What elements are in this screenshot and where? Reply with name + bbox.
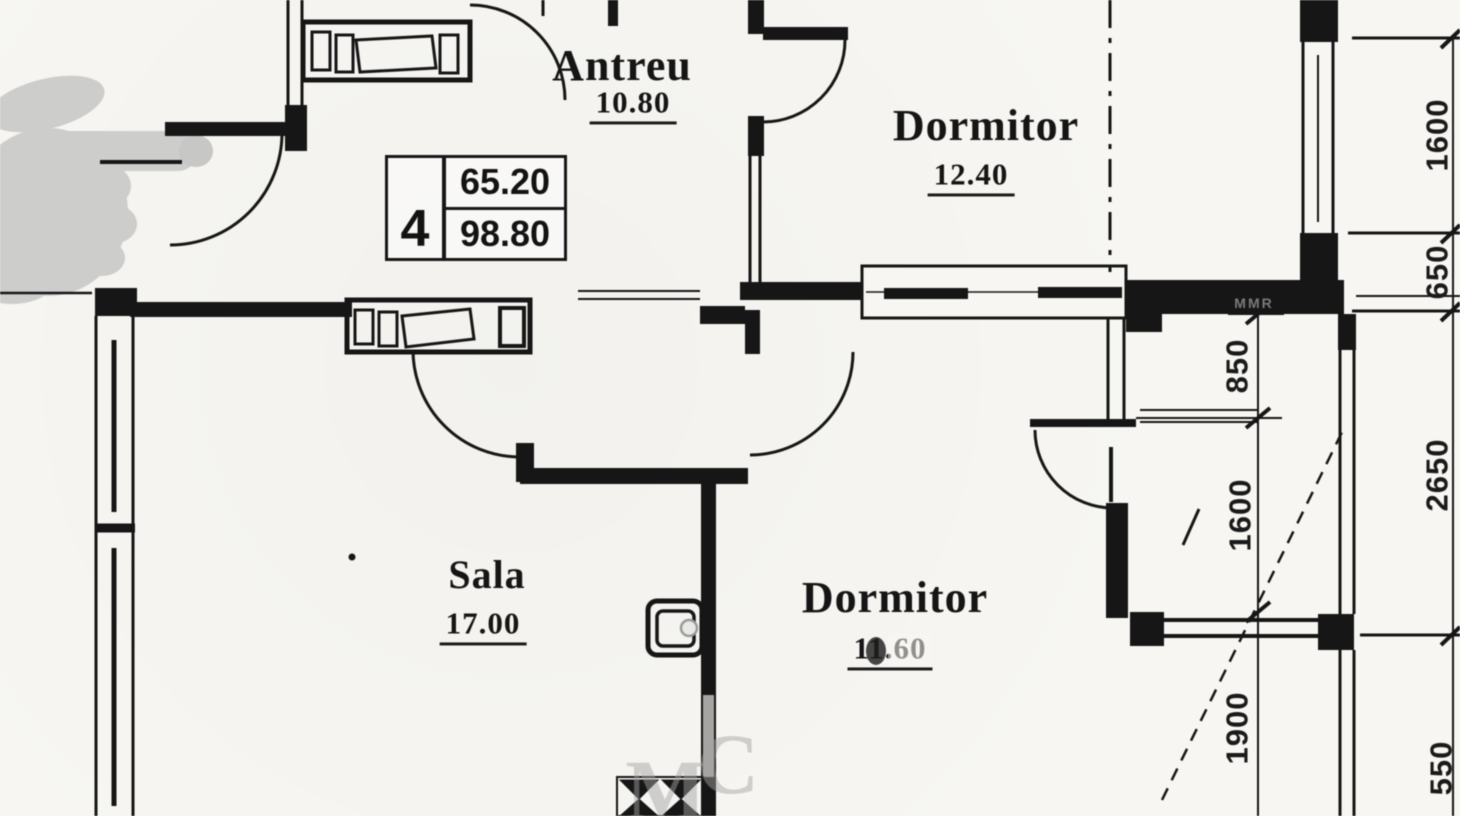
dim-outer-550: 550 xyxy=(1426,741,1457,796)
watermark-wall-text: MMR xyxy=(1234,296,1273,310)
floor-plan-artwork: Antreu 10.80 Dormitor 12.40 Sala 17.00 D… xyxy=(0,0,1460,816)
scan-fade-patch xyxy=(888,633,932,666)
dim-inner-1900: 1900 xyxy=(1222,692,1253,765)
apartment-info-box: 4 65.20 98.80 xyxy=(385,155,567,261)
sala-opening-right-arc xyxy=(750,352,853,455)
antreu-top-door-arc xyxy=(470,5,565,100)
room-area-dormitor1: 12.40 xyxy=(928,157,1015,196)
sofa-top xyxy=(303,22,470,80)
apartment-built-area: 98.80 xyxy=(446,210,564,259)
dormitor1-door-arc xyxy=(763,40,845,122)
dim-outer-1600-top: 1600 xyxy=(1422,99,1453,172)
room-label-sala: Sala xyxy=(448,555,525,595)
apartment-useful-area: 65.20 xyxy=(446,158,564,210)
room-area-antreu: 10.80 xyxy=(590,85,677,124)
room-label-dormitor2: Dormitor xyxy=(802,576,988,620)
room-area-sala: 17.00 xyxy=(440,606,527,645)
bench-antreu xyxy=(347,300,530,352)
dormitor2-door-arc xyxy=(1035,430,1113,508)
apartment-areas: 65.20 98.80 xyxy=(446,158,564,258)
scan-smudge xyxy=(866,637,886,665)
walls xyxy=(95,0,1356,816)
sink-fixture xyxy=(648,601,702,655)
floor-plan: Antreu 10.80 Dormitor 12.40 Sala 17.00 D… xyxy=(0,0,1460,816)
dim-outer-650: 650 xyxy=(1422,245,1453,300)
plan-dot-mark xyxy=(349,554,356,561)
dim-inner-1600: 1600 xyxy=(1225,479,1256,552)
watermark-letter-m: M xyxy=(625,747,706,816)
dim-inner-850: 850 xyxy=(1222,339,1253,394)
apartment-number: 4 xyxy=(388,158,446,258)
room-label-antreu: Antreu xyxy=(552,44,692,88)
room-label-dormitor1: Dormitor xyxy=(893,104,1079,148)
sala-opening-left-arc xyxy=(413,350,520,457)
pointing-hand-watermark xyxy=(0,65,213,304)
dim-outer-2650: 2650 xyxy=(1422,439,1453,512)
watermark-letter-c: C xyxy=(697,721,759,807)
